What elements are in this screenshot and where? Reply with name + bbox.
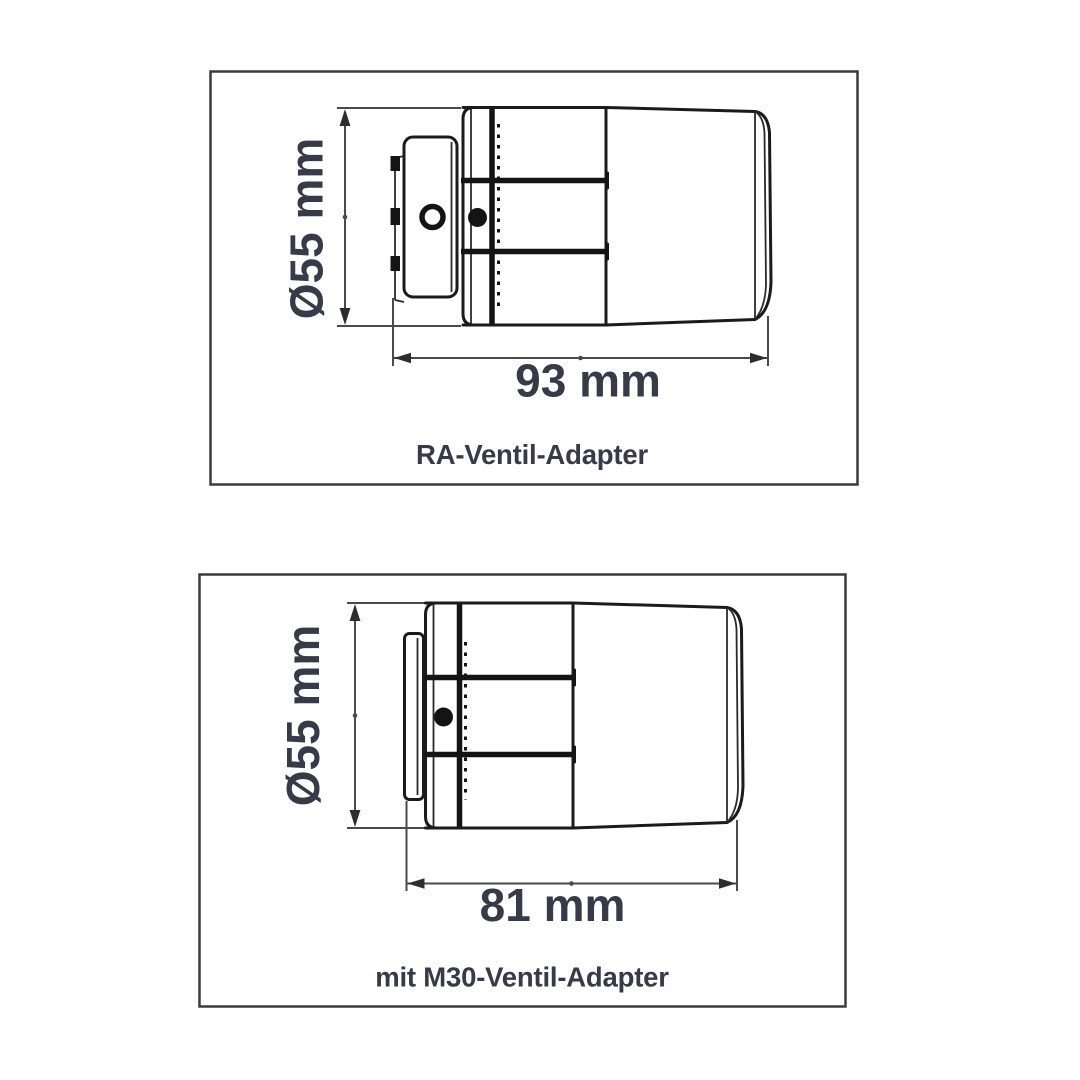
m30-diameter-label: Ø55 mm [277,625,329,807]
end-cap-rim [727,608,738,823]
ra-diameter-label: Ø55 mm [281,138,333,320]
m30-diameter-dimension: Ø55 mm [277,603,425,828]
technical-drawing-page: Ø55 mm [0,0,1080,1080]
adapter-notch [391,208,401,225]
dim-midpoint-tick [353,713,358,718]
rear-bottom-edge [573,823,727,829]
end-cap-outline [727,608,743,823]
end-cap-outline [755,112,771,320]
ra-length-label: 93 mm [515,355,661,407]
dim-arrow-down-icon [340,308,351,325]
ra-panel: Ø55 mm [211,72,858,485]
adapter-notch [391,156,401,171]
dim-arrow-right-icon [719,878,736,889]
dim-arrow-left-icon [408,878,425,889]
end-cap-rim [755,112,766,320]
rear-bottom-edge [606,320,755,326]
technical-drawing-canvas: Ø55 mm [0,0,1080,1080]
ra-length-dimension: 93 mm [393,298,768,407]
dim-arrow-left-icon [394,353,411,364]
m30-adapter-ring [405,634,424,800]
adapter-notch [391,256,401,271]
ra-caption: RA-Ventil-Adapter [416,439,648,470]
collar-button-dot [468,208,487,227]
m30-caption: mit M30-Ventil-Adapter [375,962,669,993]
m30-panel: Ø55 mm [200,575,846,1007]
ra-device-drawing [391,106,772,327]
m30-length-label: 81 mm [480,879,626,931]
dim-arrow-up-icon [350,604,361,621]
rear-top-edge [573,603,727,608]
collar-button-dot [434,708,453,727]
rear-top-edge [606,108,755,112]
adapter-front-hook [395,300,404,302]
dim-arrow-up-icon [340,109,351,126]
dim-arrow-down-icon [350,810,361,827]
dim-arrow-right-icon [750,353,767,364]
adapter-center-hole [422,207,443,228]
dim-midpoint-tick [343,215,348,220]
m30-device-drawing [405,602,744,830]
